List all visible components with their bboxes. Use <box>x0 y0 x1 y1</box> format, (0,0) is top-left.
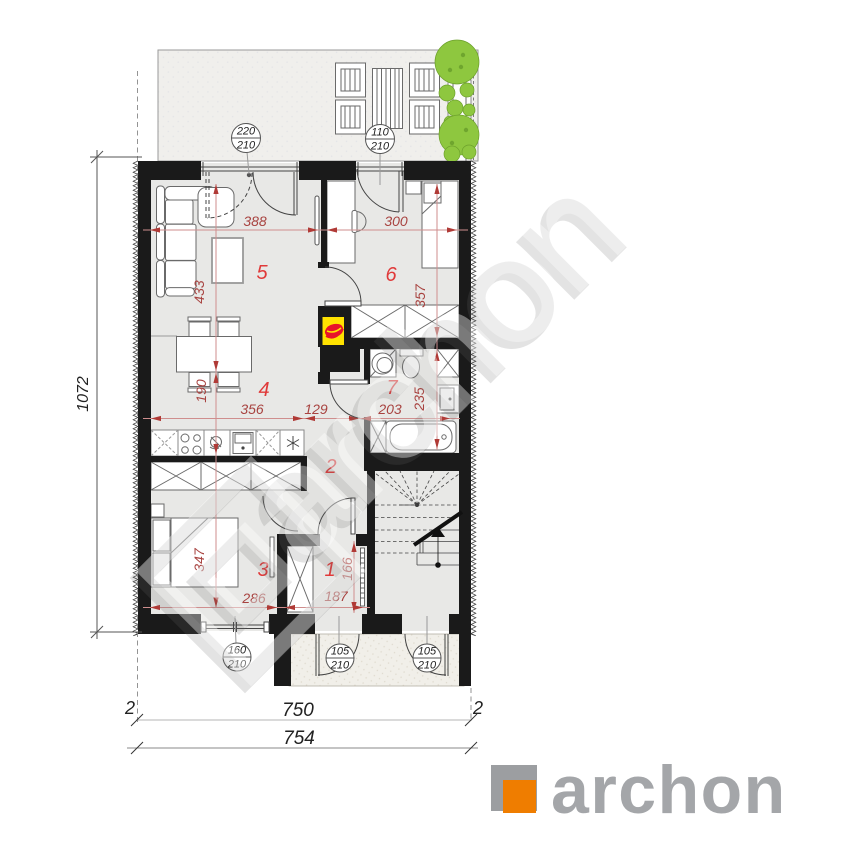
svg-text:210: 210 <box>330 660 350 672</box>
svg-text:2: 2 <box>472 698 483 718</box>
svg-text:105: 105 <box>418 646 437 658</box>
svg-text:105: 105 <box>331 646 350 658</box>
svg-text:388: 388 <box>243 213 267 229</box>
svg-text:110: 110 <box>371 127 389 139</box>
svg-text:1072: 1072 <box>75 376 92 412</box>
svg-text:2: 2 <box>124 698 135 718</box>
svg-text:433: 433 <box>191 280 207 304</box>
svg-text:754: 754 <box>283 728 315 749</box>
svg-text:210: 210 <box>370 141 390 153</box>
svg-text:190: 190 <box>193 379 209 403</box>
svg-text:4: 4 <box>258 379 269 401</box>
svg-text:300: 300 <box>384 213 408 229</box>
svg-text:210: 210 <box>417 660 437 672</box>
svg-text:5: 5 <box>256 262 268 284</box>
svg-text:220: 220 <box>236 126 256 138</box>
svg-text:750: 750 <box>282 700 314 721</box>
svg-text:archon: archon <box>551 752 787 828</box>
svg-text:210: 210 <box>236 140 256 152</box>
